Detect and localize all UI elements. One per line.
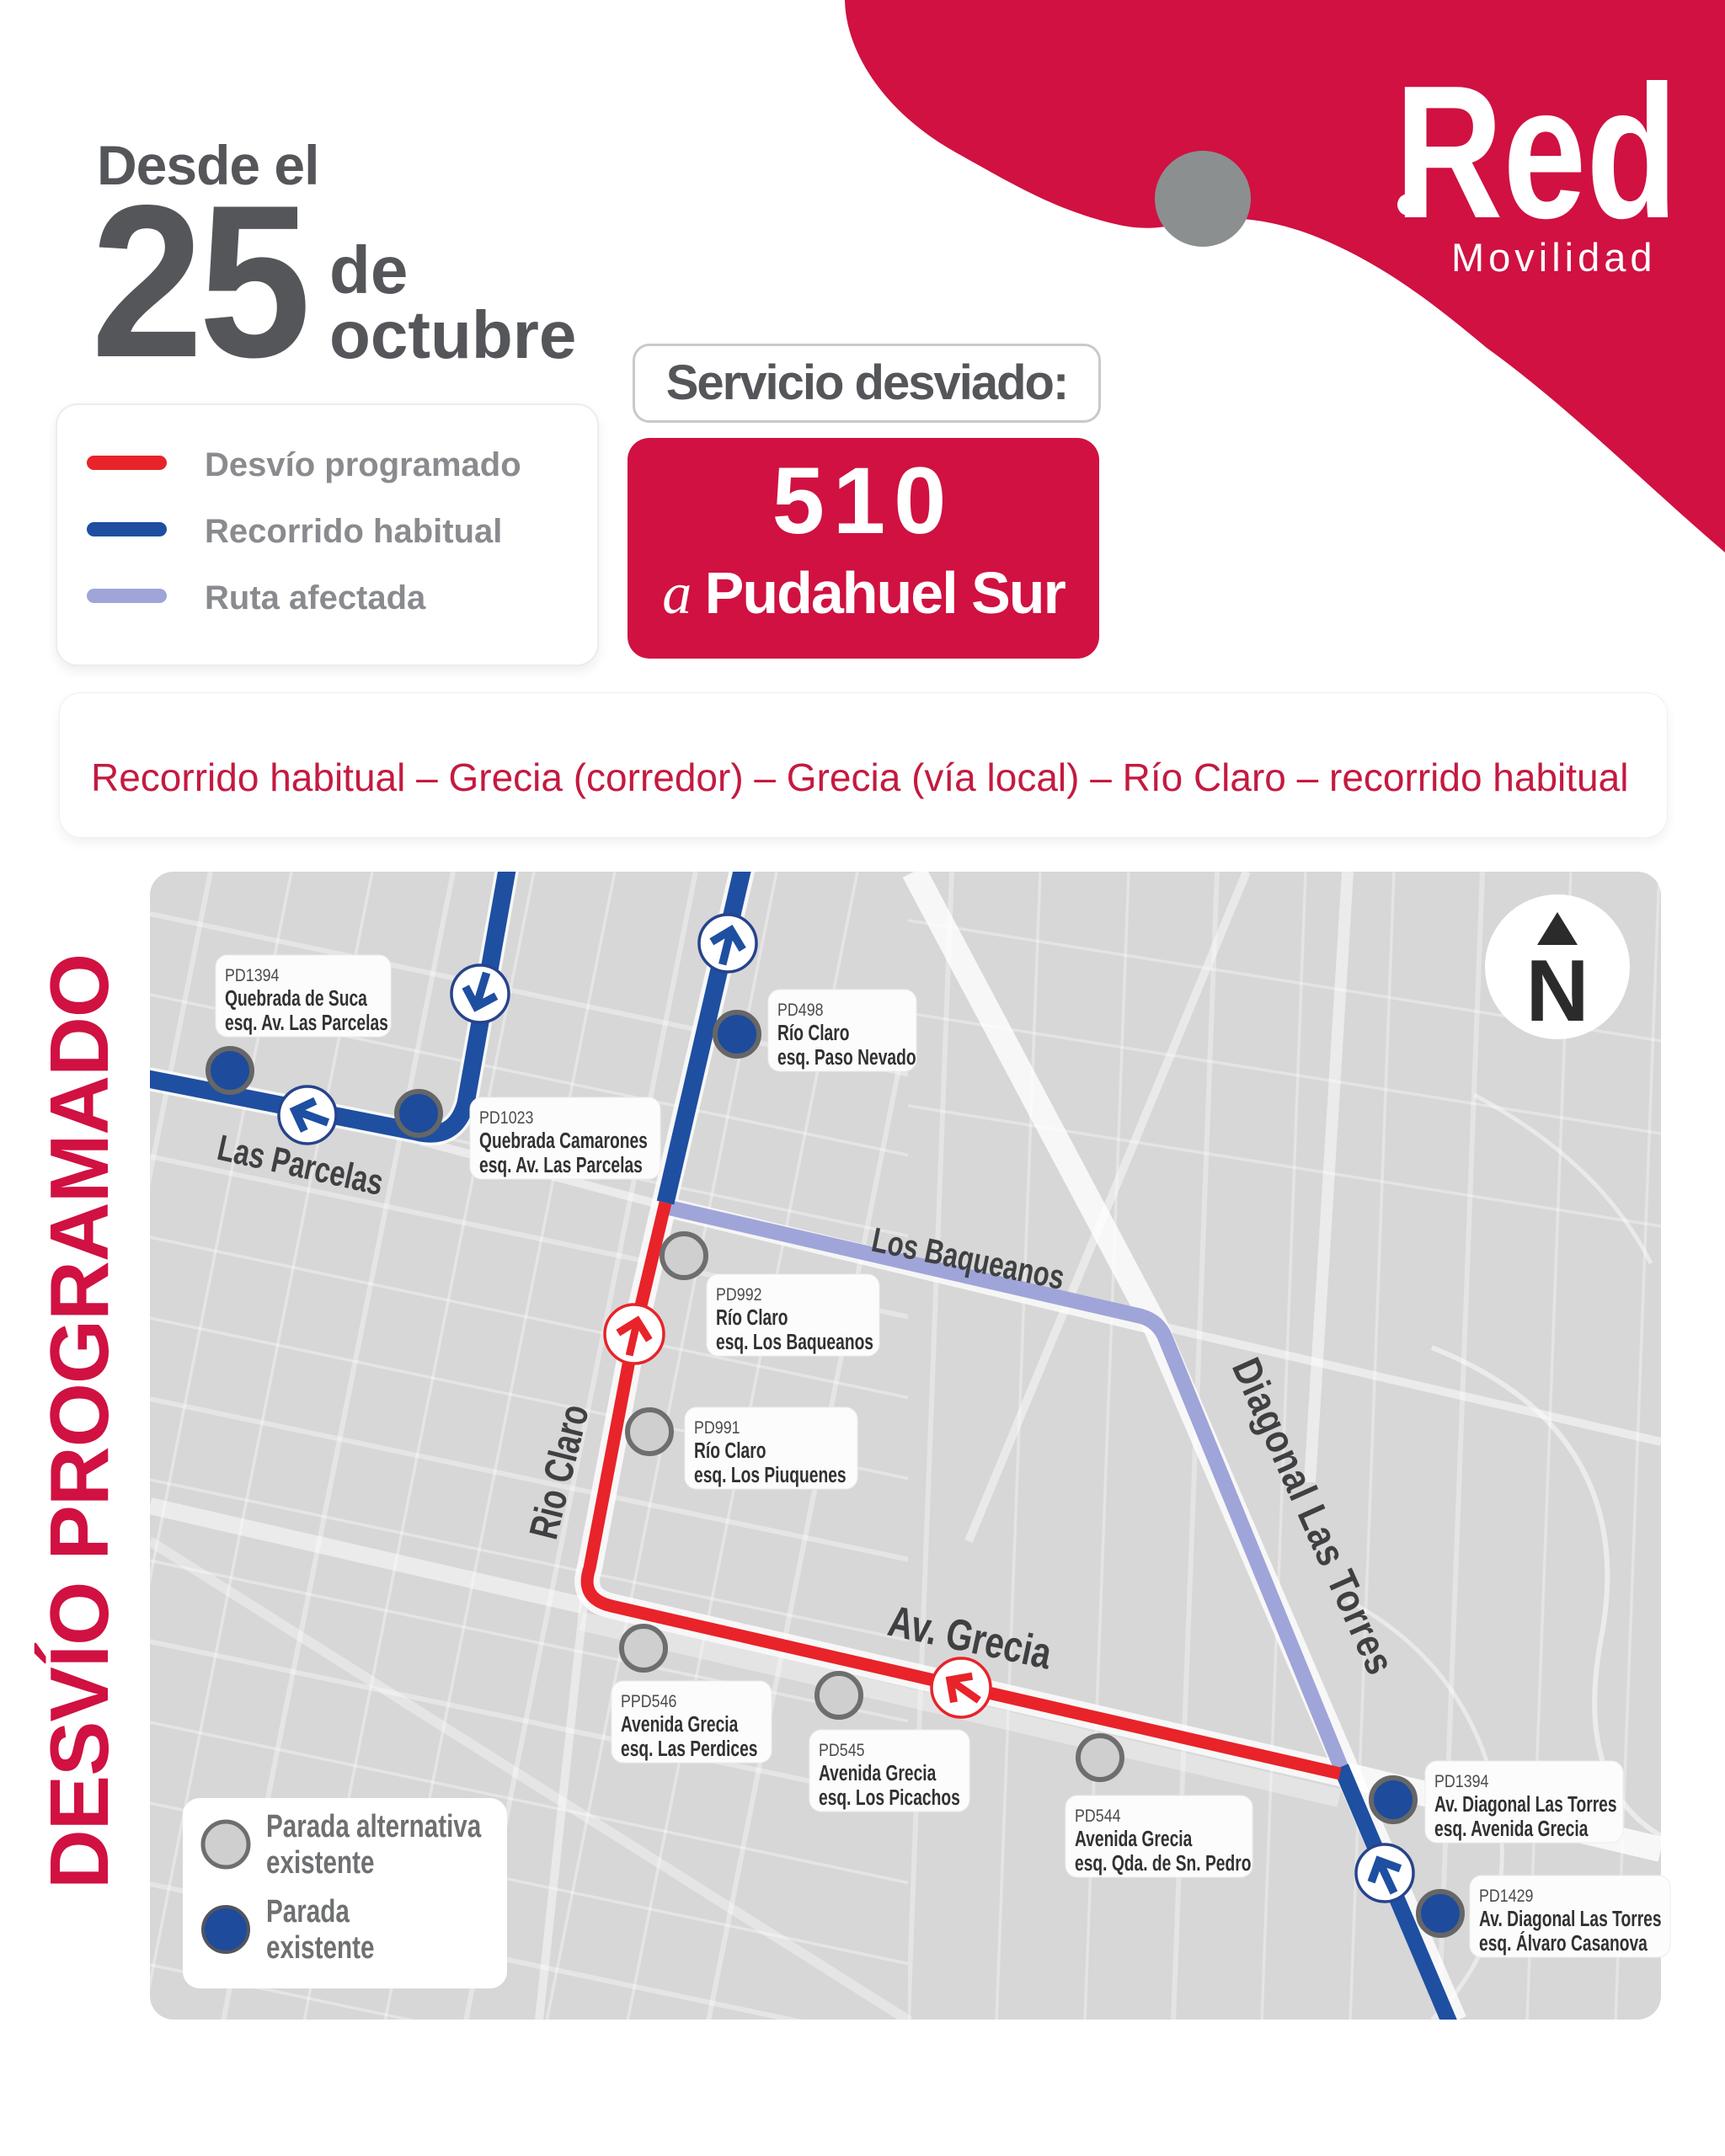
svg-text:esq. Paso Nevado: esq. Paso Nevado [777, 1044, 916, 1070]
svg-text:Parada alternativa: Parada alternativa [266, 1809, 482, 1844]
svg-text:esq. Álvaro Casanova: esq. Álvaro Casanova [1479, 1930, 1648, 1956]
svg-text:PD545: PD545 [819, 1741, 865, 1761]
svg-text:Parada: Parada [266, 1894, 350, 1929]
svg-text:PD991: PD991 [694, 1418, 740, 1438]
svg-text:Avenida Grecia: Avenida Grecia [819, 1760, 937, 1785]
svg-text:Río Claro: Río Claro [716, 1305, 788, 1330]
svg-text:PD1023: PD1023 [479, 1108, 533, 1129]
svg-text:esq. Qda. de Sn. Pedro: esq. Qda. de Sn. Pedro [1075, 1850, 1251, 1876]
svg-text:PD498: PD498 [777, 1001, 824, 1021]
svg-text:PD1394: PD1394 [1434, 1772, 1489, 1792]
svg-text:Quebrada Camarones: Quebrada Camarones [479, 1128, 648, 1153]
svg-text:esq. Avenida Grecia: esq. Avenida Grecia [1434, 1816, 1589, 1841]
svg-text:Av. Diagonal Las Torres: Av. Diagonal Las Torres [1434, 1791, 1617, 1817]
svg-text:Río Claro: Río Claro [694, 1438, 766, 1463]
svg-text:PD992: PD992 [716, 1285, 762, 1305]
svg-text:existente: existente [266, 1845, 374, 1881]
svg-text:esq. Los Piuquenes: esq. Los Piuquenes [694, 1462, 846, 1487]
svg-text:Avenida Grecia: Avenida Grecia [621, 1711, 739, 1737]
svg-text:PD544: PD544 [1075, 1806, 1121, 1827]
svg-text:esq. Las Perdices: esq. Las Perdices [621, 1736, 757, 1761]
svg-text:PD1429: PD1429 [1479, 1886, 1533, 1907]
svg-text:existente: existente [266, 1930, 374, 1966]
svg-text:Avenida Grecia: Avenida Grecia [1075, 1826, 1193, 1851]
svg-text:esq. Los Picachos: esq. Los Picachos [819, 1785, 960, 1810]
svg-text:esq. Av. Las Parcelas: esq. Av. Las Parcelas [225, 1010, 388, 1035]
svg-text:Quebrada de Suca: Quebrada de Suca [225, 985, 367, 1011]
svg-text:esq. Los Baqueanos: esq. Los Baqueanos [716, 1329, 873, 1354]
svg-text:N: N [1525, 942, 1589, 1040]
svg-text:PPD546: PPD546 [621, 1692, 676, 1712]
svg-text:PD1394: PD1394 [225, 966, 280, 986]
svg-text:esq. Av. Las Parcelas: esq. Av. Las Parcelas [479, 1152, 643, 1177]
svg-text:Av. Diagonal Las Torres: Av. Diagonal Las Torres [1479, 1906, 1662, 1931]
svg-text:Río Claro: Río Claro [777, 1020, 850, 1045]
